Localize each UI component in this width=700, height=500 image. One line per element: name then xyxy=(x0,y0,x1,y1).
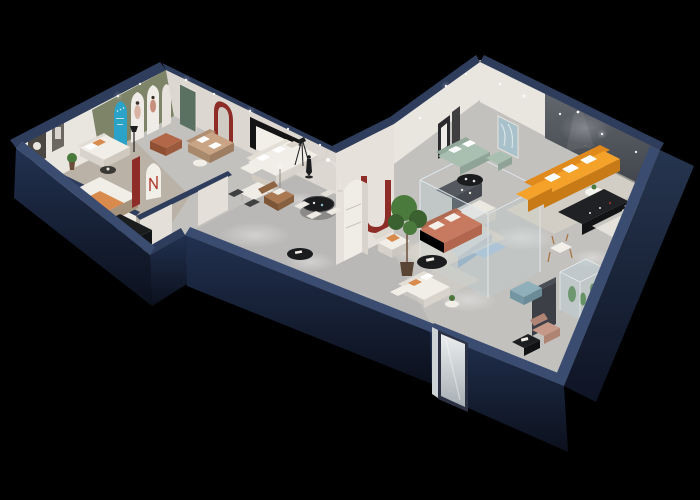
round-art xyxy=(33,142,41,150)
banner-text-line xyxy=(116,118,124,119)
showroom-render-stage: ···· ·· ··· ····· ··· ···· ··· ····· xyxy=(0,0,700,500)
arch-display-n xyxy=(146,163,161,200)
table-plant xyxy=(592,185,597,190)
white-column-shade xyxy=(362,181,368,255)
model-photo xyxy=(134,105,140,119)
plant xyxy=(67,153,77,163)
banner-text-dots xyxy=(120,109,122,111)
table-decor xyxy=(321,204,323,206)
banner-text-line xyxy=(117,124,123,125)
downlight-icon xyxy=(577,111,580,114)
black-oval-table xyxy=(457,174,483,186)
arc-lamp-bulb xyxy=(326,158,330,162)
arc-lamp-base xyxy=(337,190,343,192)
banner-text-dots xyxy=(117,110,119,112)
black-oval-table xyxy=(287,248,313,260)
banner-text-dots xyxy=(123,107,125,109)
door-jamb xyxy=(432,327,438,398)
plant-pot xyxy=(69,162,75,170)
isometric-floorplan: ···· ·· ··· ····· ··· ···· ··· ····· xyxy=(0,0,700,500)
table-decor xyxy=(473,180,476,183)
console-decor xyxy=(609,202,611,204)
tree-pot xyxy=(400,262,414,276)
art-frame-side xyxy=(250,117,256,150)
model-photo xyxy=(150,100,156,113)
shelf-decor xyxy=(469,192,471,194)
console-decor xyxy=(589,212,591,214)
round-side-table xyxy=(193,160,207,167)
shelf-decor xyxy=(461,189,463,191)
lamp-globe xyxy=(277,163,283,169)
table-decor xyxy=(313,202,315,204)
table-decor xyxy=(107,168,110,171)
console-decor xyxy=(599,207,601,209)
tree-foliage xyxy=(403,221,417,235)
model-photo-hair xyxy=(151,96,154,99)
red-banner-display xyxy=(132,156,140,208)
model-photo-hair xyxy=(136,101,140,105)
niche-art xyxy=(55,127,61,139)
white-column xyxy=(344,180,362,261)
table-decor xyxy=(465,178,468,181)
side-table xyxy=(445,301,459,308)
tree-foliage xyxy=(388,214,404,230)
